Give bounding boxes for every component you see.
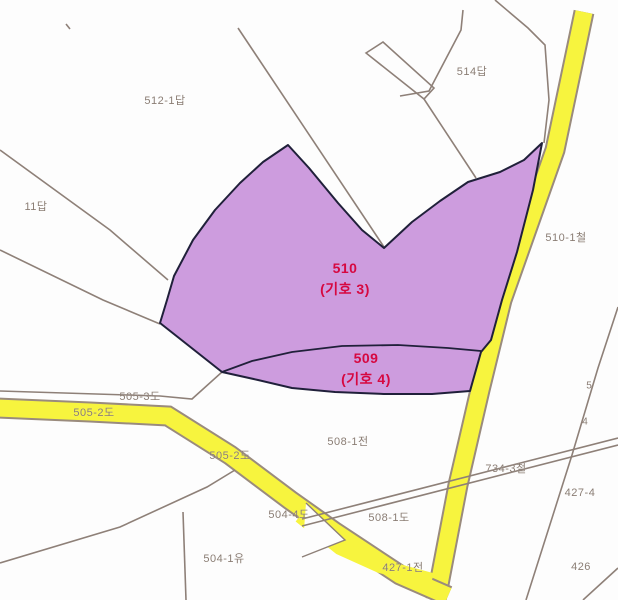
highlight-label-510-marker: (기호 3) — [320, 279, 370, 299]
parcel-label: 504-1유 — [203, 550, 244, 566]
clipped-label-fragment: 4 — [582, 417, 588, 428]
parcel-label: 11답 — [24, 198, 47, 214]
highlight-label-509-marker: (기호 4) — [341, 369, 391, 389]
parcel-label: 505-3도 — [119, 388, 160, 404]
parcel-label: 505-2도 — [73, 404, 114, 420]
highlight-label-510: 510 — [333, 260, 358, 276]
parcel-label: 512-1답 — [144, 92, 185, 108]
parcel-label: 508-1도 — [368, 509, 409, 525]
parcel-label: 510-1철 — [545, 229, 586, 245]
parcel-label: 734-3철 — [485, 460, 526, 476]
label-layer: 512-1답 514답 11답 510-1철 510 (기호 3) 509 (기… — [0, 0, 618, 600]
parcel-label: 504-4도 — [268, 506, 309, 522]
parcel-label: 505-2도 — [209, 447, 250, 463]
parcel-label: 427-1전 — [382, 559, 423, 575]
parcel-label: 427-4 — [565, 487, 596, 499]
cadastral-map: 512-1답 514답 11답 510-1철 510 (기호 3) 509 (기… — [0, 0, 618, 600]
parcel-label: 508-1전 — [327, 433, 368, 449]
highlight-label-509: 509 — [354, 350, 379, 366]
parcel-label: 426 — [571, 561, 591, 573]
clipped-label-fragment: 5 — [586, 381, 592, 392]
parcel-label: 514답 — [457, 63, 487, 79]
